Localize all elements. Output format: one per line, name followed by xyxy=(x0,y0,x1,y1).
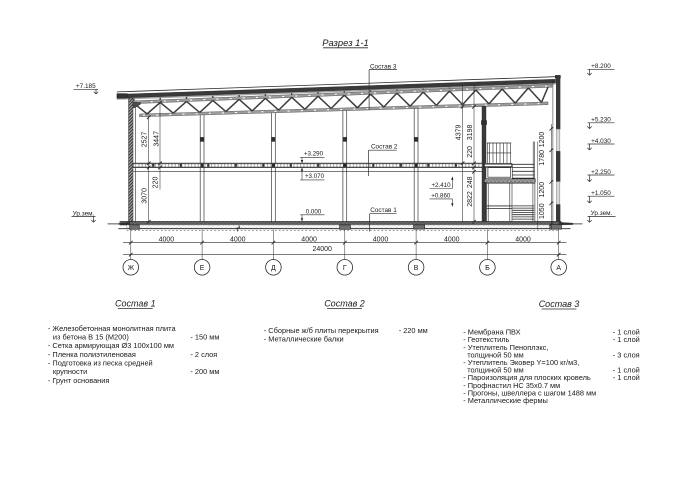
svg-text:Б: Б xyxy=(485,265,490,272)
svg-text:Состав 1: Состав 1 xyxy=(115,299,156,309)
svg-text:- 3 слоя: - 3 слоя xyxy=(613,350,640,359)
svg-text:4000: 4000 xyxy=(301,236,317,243)
svg-text:Состав 1: Состав 1 xyxy=(370,207,397,214)
svg-text:4379: 4379 xyxy=(456,125,463,141)
svg-text:Е: Е xyxy=(200,265,205,272)
svg-text:4000: 4000 xyxy=(373,236,389,243)
svg-text:Г: Г xyxy=(343,265,347,272)
svg-text:2822: 2822 xyxy=(467,191,474,207)
svg-text:1050: 1050 xyxy=(539,203,546,219)
svg-text:3447: 3447 xyxy=(153,131,160,147)
svg-text:4000: 4000 xyxy=(444,236,460,243)
svg-text:4000: 4000 xyxy=(230,236,246,243)
svg-text:220: 220 xyxy=(467,146,474,158)
svg-text:Состав 3: Состав 3 xyxy=(539,299,580,309)
svg-text:- 1 слой: - 1 слой xyxy=(613,373,640,382)
svg-text:220: 220 xyxy=(152,177,159,189)
svg-text:- 220 мм: - 220 мм xyxy=(399,326,428,335)
svg-text:4000: 4000 xyxy=(159,236,175,243)
svg-text:В: В xyxy=(414,265,419,272)
svg-text:24000: 24000 xyxy=(312,246,332,253)
svg-text:Разрез 1-1: Разрез 1-1 xyxy=(322,37,368,48)
svg-text:Д: Д xyxy=(271,265,276,272)
svg-text:3070: 3070 xyxy=(142,188,149,204)
svg-text:А: А xyxy=(556,265,561,272)
svg-text:1780: 1780 xyxy=(539,150,546,166)
svg-text:Ж: Ж xyxy=(128,265,135,272)
svg-text:4000: 4000 xyxy=(515,236,531,243)
svg-text:Состав 2: Состав 2 xyxy=(371,144,398,151)
svg-text:+0.860: +0.860 xyxy=(431,193,451,200)
svg-text:1200: 1200 xyxy=(539,132,546,148)
svg-text:- Грунт основания: - Грунт основания xyxy=(48,376,110,385)
svg-text:- Подготовка из песка средней: - Подготовка из песка средней xyxy=(48,358,153,367)
svg-text:Состав 2: Состав 2 xyxy=(324,299,365,309)
svg-text:248: 248 xyxy=(467,176,474,188)
svg-text:- 150 мм: - 150 мм xyxy=(190,333,219,342)
svg-text:1200: 1200 xyxy=(539,182,546,198)
svg-text:- 1 слой: - 1 слой xyxy=(613,335,640,344)
svg-text:+3.290: +3.290 xyxy=(304,150,324,157)
svg-text:крупности: крупности xyxy=(53,367,87,376)
svg-text:- Металлические балки: - Металлические балки xyxy=(264,335,344,344)
svg-text:3198: 3198 xyxy=(467,125,474,141)
svg-text:- 200 мм: - 200 мм xyxy=(190,367,219,376)
svg-text:- Металлические фермы: - Металлические фермы xyxy=(463,396,548,405)
svg-text:- Сетка армирующая Ø3 100х100: - Сетка армирующая Ø3 100х100 мм xyxy=(48,341,174,350)
svg-text:- 2 слоя: - 2 слоя xyxy=(190,350,217,359)
svg-text:2527: 2527 xyxy=(142,132,149,148)
svg-text:+3.070: +3.070 xyxy=(305,173,325,180)
svg-text:+2.410: +2.410 xyxy=(431,182,451,189)
svg-text:0.000: 0.000 xyxy=(306,208,322,215)
